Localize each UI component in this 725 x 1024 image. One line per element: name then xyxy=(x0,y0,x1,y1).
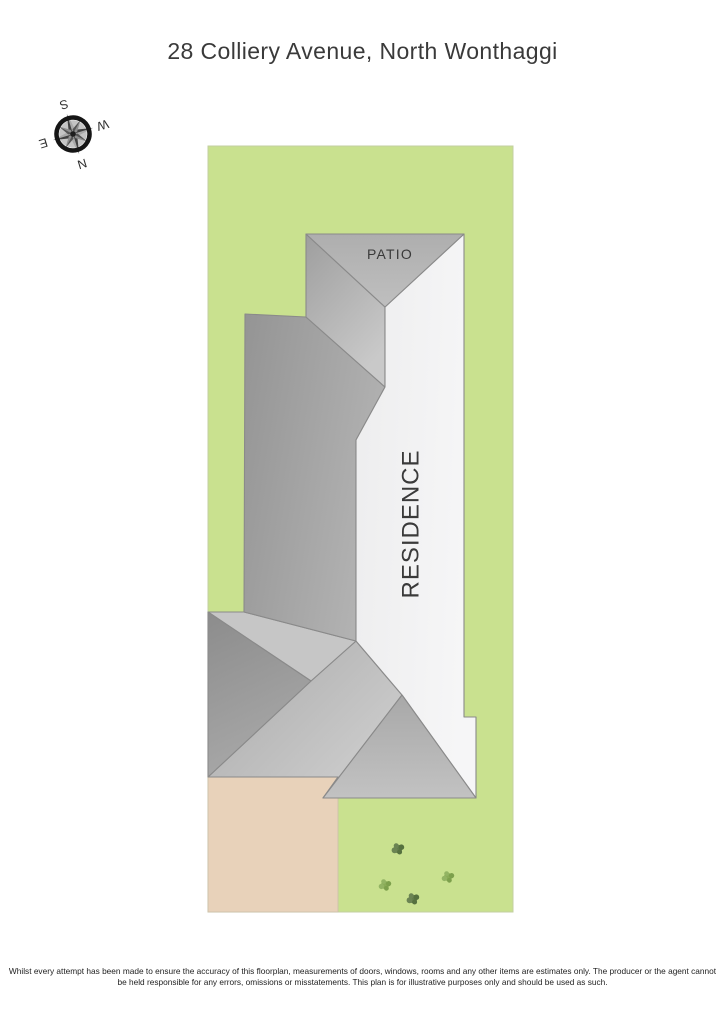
compass-south-label: S xyxy=(58,96,70,112)
disclaimer-line-1: Whilst every attempt has been made to en… xyxy=(0,966,725,977)
compass-star xyxy=(45,106,102,163)
driveway-pad xyxy=(208,777,338,912)
site-plan-page: { "page": { "title": "28 Colliery Avenue… xyxy=(0,0,725,1024)
compass-east-label: E xyxy=(37,135,49,151)
patio-label: PATIO xyxy=(367,246,413,262)
site-plan-figure: PATIO RESIDENCE N E S xyxy=(0,0,725,1024)
disclaimer: Whilst every attempt has been made to en… xyxy=(0,966,725,988)
residence-label: RESIDENCE xyxy=(398,449,425,598)
compass-west-label: W xyxy=(95,117,111,134)
compass-rose: N E S W xyxy=(28,87,119,181)
compass-north-label: N xyxy=(76,156,89,172)
disclaimer-line-2: be held responsible for any errors, omis… xyxy=(0,977,725,988)
